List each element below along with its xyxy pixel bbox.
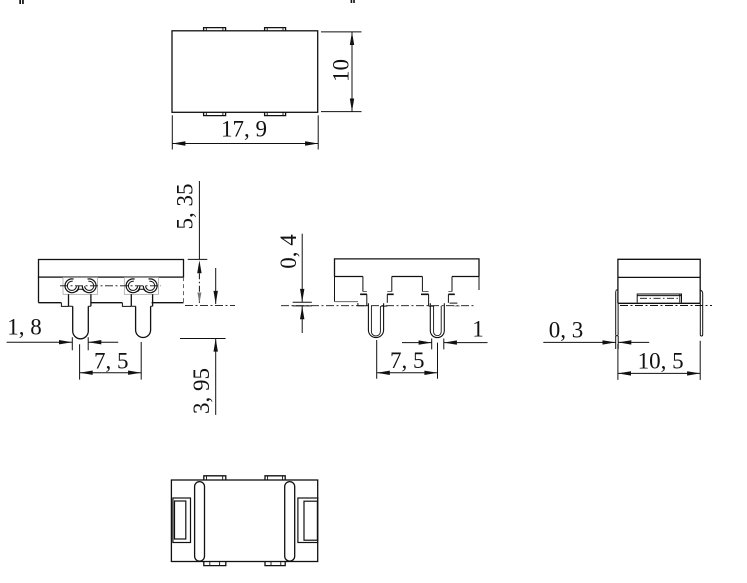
svg-text:10: 10 [329,59,354,82]
svg-text:7, 5: 7, 5 [390,348,425,373]
svg-text:1: 1 [472,317,484,342]
svg-text:10, 5: 10, 5 [638,349,684,374]
svg-text:1, 8: 1, 8 [7,315,42,340]
svg-text:7, 5: 7, 5 [94,349,129,374]
svg-text:0, 4: 0, 4 [276,234,301,269]
svg-text:5, 35: 5, 35 [173,184,198,230]
svg-text:3, 95: 3, 95 [189,368,214,414]
svg-text:0, 3: 0, 3 [549,318,584,343]
svg-text:17, 9: 17, 9 [221,116,267,141]
